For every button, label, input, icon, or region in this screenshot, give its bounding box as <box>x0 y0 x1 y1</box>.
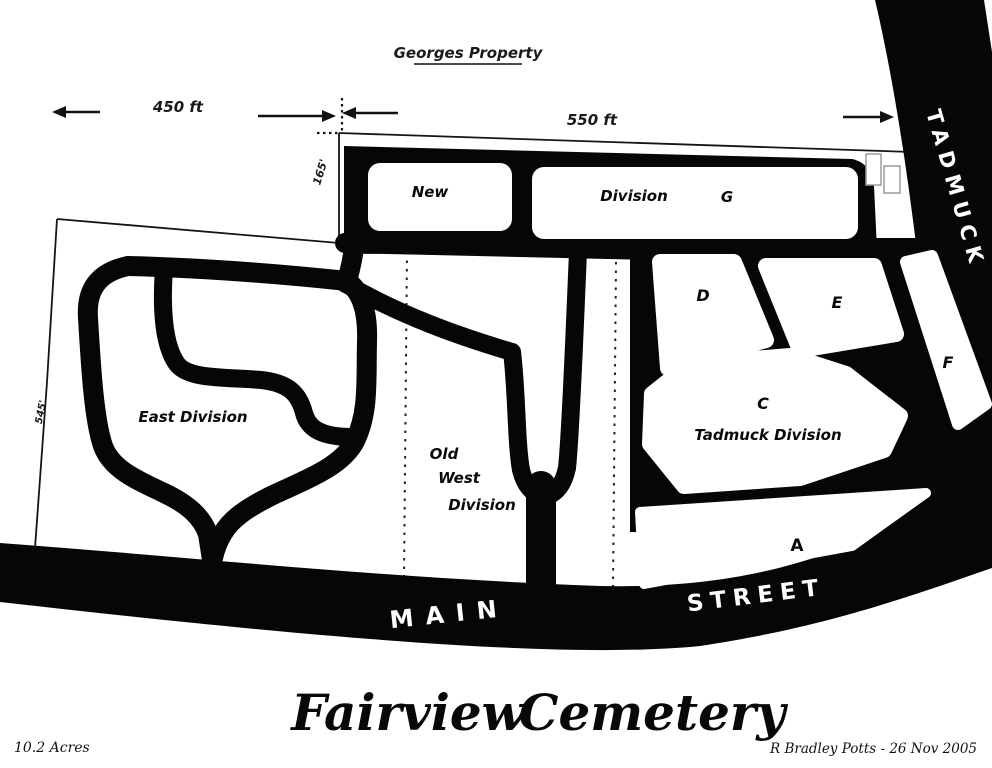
west-arrow-head <box>52 106 66 118</box>
old-west-east-dotted-line <box>613 262 616 588</box>
measurement-450ft: 450 ft <box>152 98 204 116</box>
georges-property-label: Georges Property <box>394 44 544 62</box>
offset-left-arrow-head <box>322 110 336 122</box>
section-e-letter: E <box>832 293 843 312</box>
northwest-boundary-line <box>57 219 339 243</box>
section-d-letter: D <box>696 286 709 305</box>
measurement-165ft: 165' <box>310 158 330 187</box>
west-boundary-line <box>35 219 57 548</box>
new-division-label: New <box>412 183 449 201</box>
measurement-550ft: 550 ft <box>567 111 618 129</box>
division-g-label: Division <box>600 187 668 205</box>
old-west-line1: Old <box>430 445 459 463</box>
section-a-letter: A <box>790 536 804 556</box>
building-1 <box>866 154 881 185</box>
east-arrow-head <box>880 111 894 123</box>
old-west-line3: Division <box>448 496 516 514</box>
author-credit: R Bradley Potts - 26 Nov 2005 <box>769 741 977 757</box>
building-2 <box>884 166 900 193</box>
measurement-545ft: 545' <box>34 399 49 425</box>
u-road-right-branch <box>548 252 578 496</box>
section-f-letter: F <box>943 353 954 372</box>
map-canvas: Georges Property 450 ft 550 ft 165' 545'… <box>0 0 992 768</box>
map-title-word2: Cemetery <box>519 683 789 742</box>
offset-right-arrow-head <box>342 107 356 119</box>
section-c-letter: C <box>757 394 769 413</box>
division-g-letter: G <box>721 188 733 206</box>
parcel-division-g <box>532 167 858 239</box>
cemetery-map: Georges Property 450 ft 550 ft 165' 545'… <box>0 0 992 768</box>
tadmuck-division-label: Tadmuck Division <box>694 426 841 444</box>
old-west-line2: West <box>438 469 481 487</box>
old-west-west-dotted-line <box>404 252 407 578</box>
acreage-note: 10.2 Acres <box>14 740 90 756</box>
east-division-label: East Division <box>138 408 247 426</box>
second-avenue-road <box>345 243 652 250</box>
map-title-word1: Fairview <box>289 683 526 742</box>
